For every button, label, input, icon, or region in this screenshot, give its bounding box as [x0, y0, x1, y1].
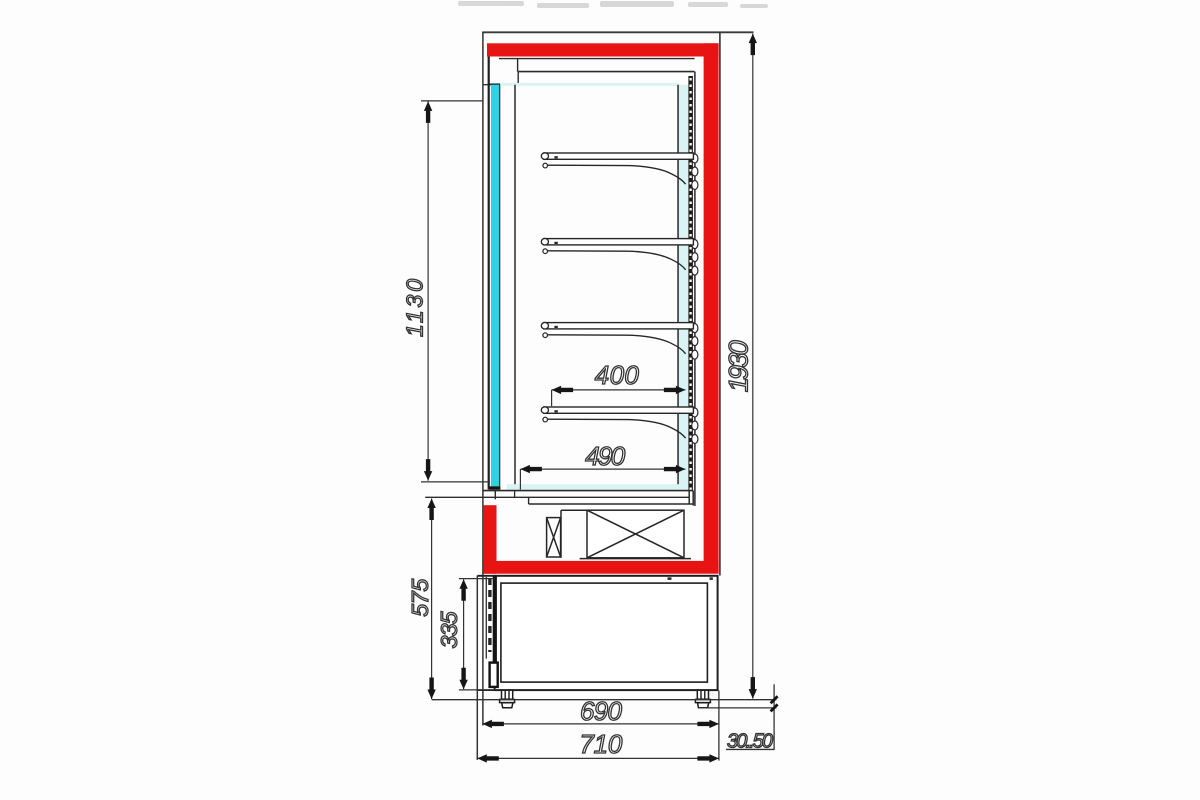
svg-text:335: 335: [436, 611, 462, 648]
svg-text:575: 575: [407, 579, 433, 617]
svg-text:710: 710: [579, 729, 623, 759]
svg-text:1930: 1930: [723, 340, 753, 392]
svg-text:400: 400: [595, 360, 640, 390]
svg-text:690: 690: [580, 696, 623, 726]
svg-text:1130: 1130: [401, 279, 427, 337]
svg-text:490: 490: [585, 441, 626, 471]
